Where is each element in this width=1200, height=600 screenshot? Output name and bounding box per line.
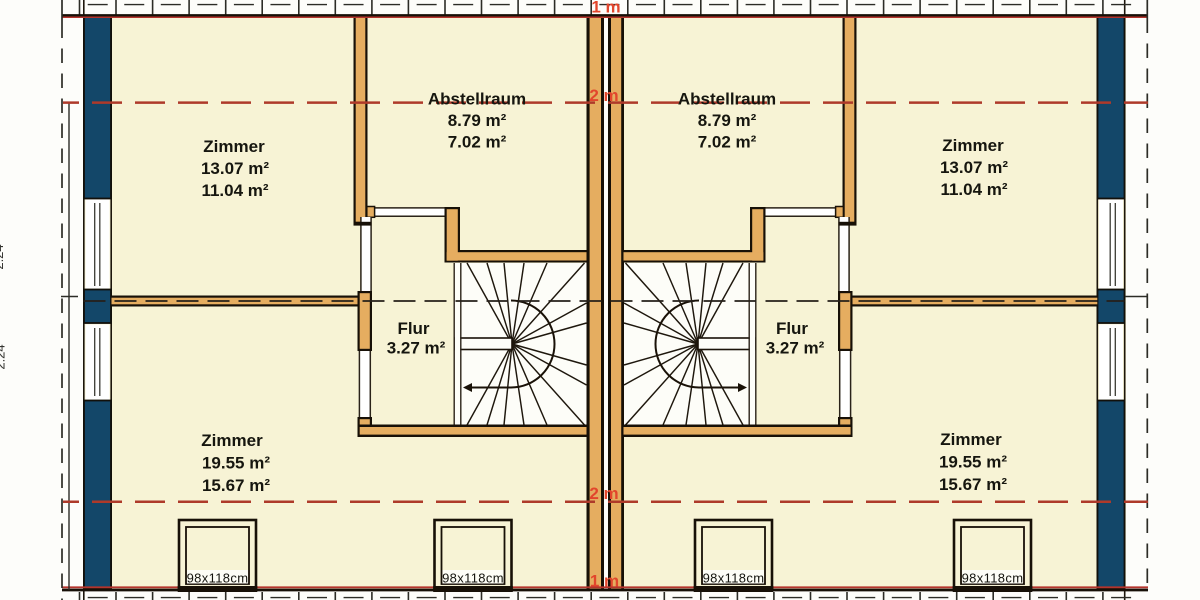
svg-text:98x118cm: 98x118cm — [442, 570, 504, 585]
svg-text:Abstellraum: Abstellraum — [678, 90, 776, 109]
svg-text:13.07 m²: 13.07 m² — [201, 159, 269, 178]
svg-text:Zimmer: Zimmer — [942, 136, 1004, 155]
svg-text:Flur: Flur — [776, 319, 808, 338]
svg-text:3.27 m²: 3.27 m² — [387, 339, 446, 358]
svg-text:1 m: 1 m — [591, 0, 620, 17]
svg-text:2.24: 2.24 — [0, 244, 6, 269]
svg-text:98x118cm: 98x118cm — [703, 570, 765, 585]
svg-text:15.67 m²: 15.67 m² — [939, 475, 1007, 494]
svg-text:2 m: 2 m — [589, 86, 618, 105]
svg-text:Flur: Flur — [397, 319, 429, 338]
svg-text:13.07 m²: 13.07 m² — [940, 158, 1008, 177]
svg-text:Abstellraum: Abstellraum — [428, 90, 526, 109]
svg-text:15.67 m²: 15.67 m² — [202, 476, 270, 495]
svg-text:11.04 m²: 11.04 m² — [201, 181, 268, 200]
svg-text:7.02 m²: 7.02 m² — [448, 133, 507, 152]
svg-text:1 m: 1 m — [590, 572, 619, 591]
svg-text:19.55 m²: 19.55 m² — [939, 453, 1007, 472]
svg-text:2.24: 2.24 — [0, 344, 8, 369]
svg-text:8.79 m²: 8.79 m² — [698, 111, 757, 130]
svg-text:7.02 m²: 7.02 m² — [698, 133, 757, 152]
svg-text:98x118cm: 98x118cm — [962, 570, 1024, 585]
svg-text:11.04 m²: 11.04 m² — [940, 180, 1007, 199]
svg-text:Zimmer: Zimmer — [201, 431, 263, 450]
svg-text:2 m: 2 m — [589, 484, 618, 503]
svg-text:Zimmer: Zimmer — [940, 430, 1002, 449]
svg-text:19.55 m²: 19.55 m² — [202, 454, 270, 473]
svg-text:8.79 m²: 8.79 m² — [448, 111, 507, 130]
svg-text:Zimmer: Zimmer — [203, 137, 265, 156]
svg-text:98x118cm: 98x118cm — [187, 570, 249, 585]
svg-text:3.27 m²: 3.27 m² — [766, 339, 825, 358]
